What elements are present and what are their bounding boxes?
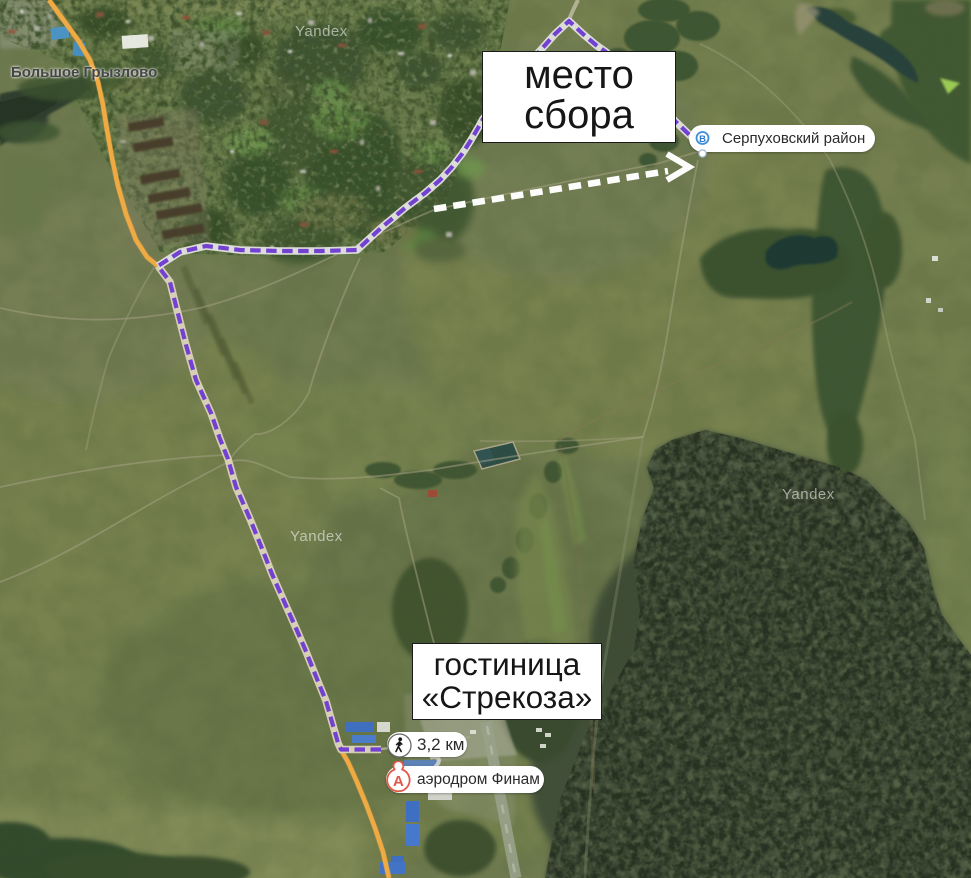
svg-text:B: B (699, 134, 706, 145)
svg-text:A: A (393, 773, 404, 790)
